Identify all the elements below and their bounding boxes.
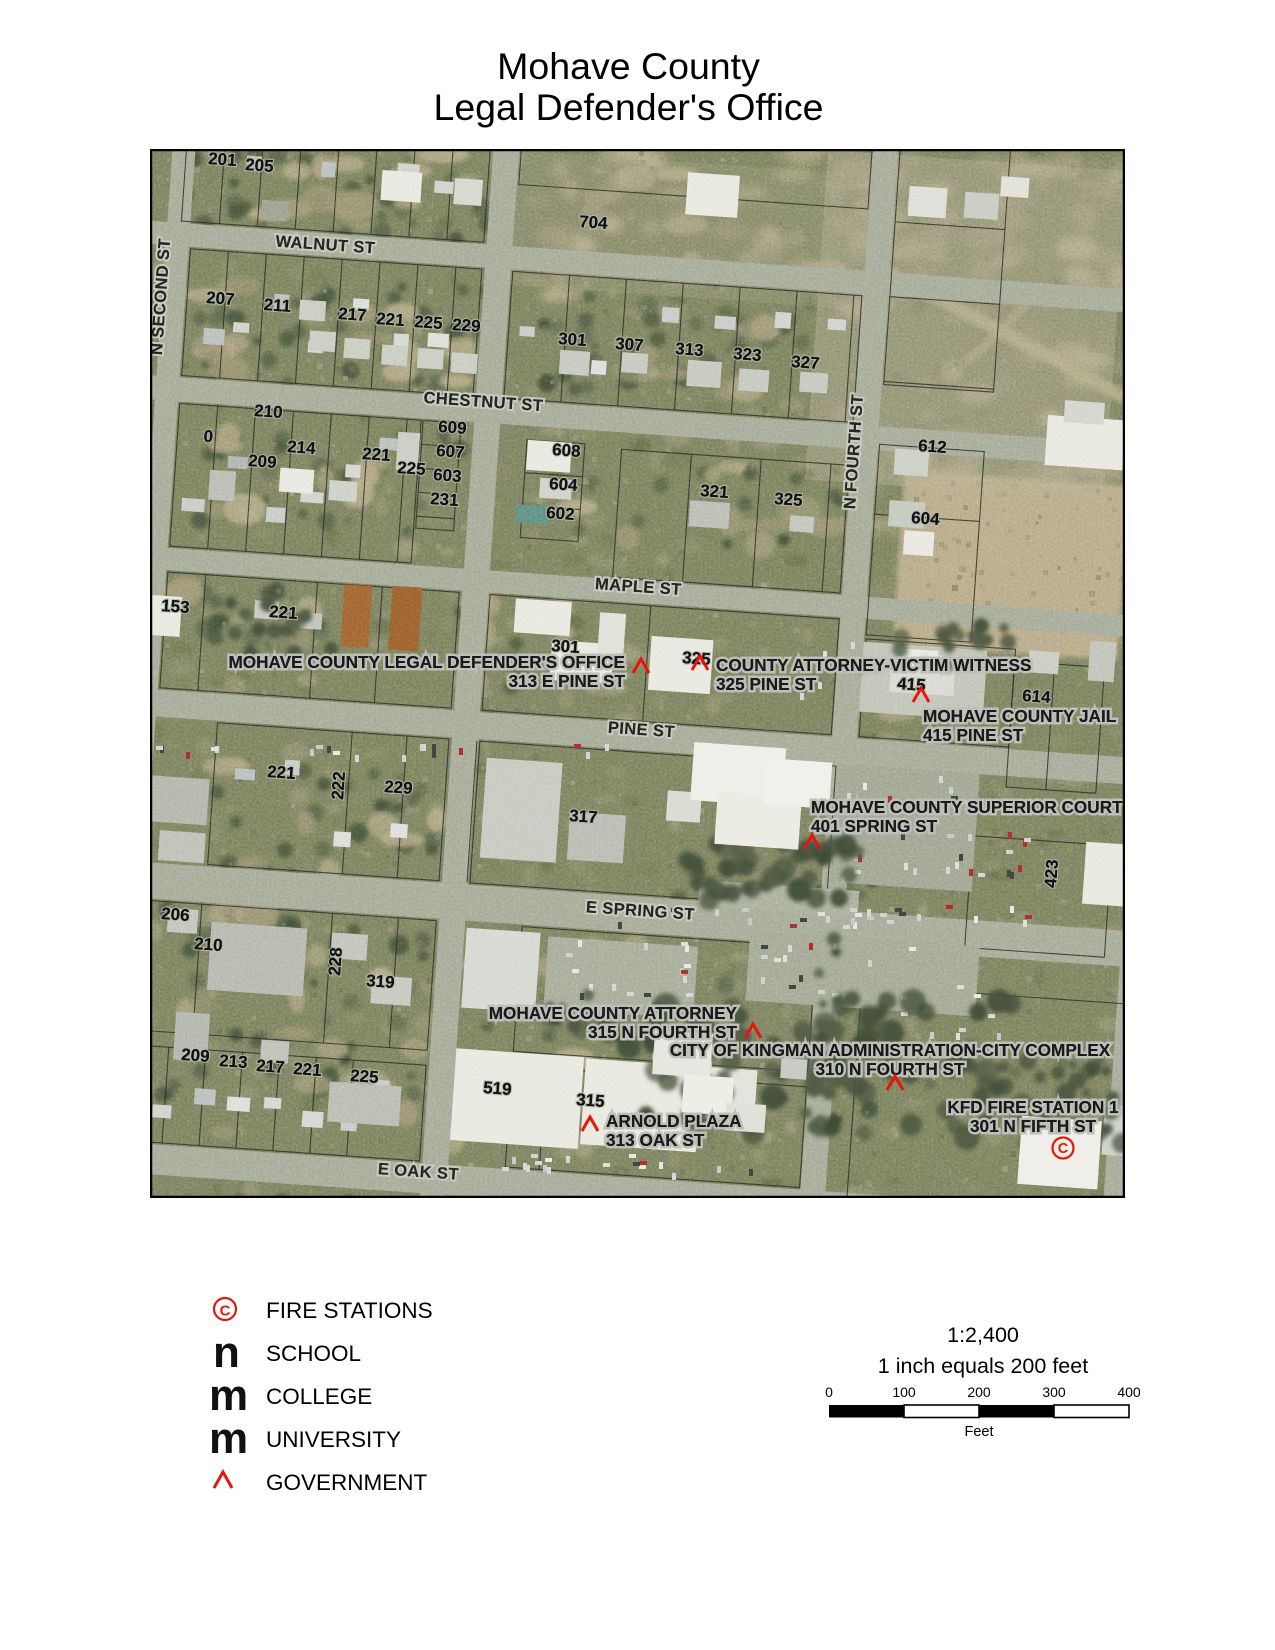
svg-text:0: 0 bbox=[825, 1384, 833, 1400]
svg-text:GOVERNMENT: GOVERNMENT bbox=[266, 1470, 428, 1495]
svg-text:COLLEGE: COLLEGE bbox=[266, 1384, 372, 1409]
svg-text:1 inch equals 200 feet: 1 inch equals 200 feet bbox=[878, 1354, 1088, 1378]
svg-text:m: m bbox=[209, 1371, 248, 1420]
svg-text:m: m bbox=[209, 1414, 248, 1463]
svg-text:n: n bbox=[213, 1328, 240, 1377]
svg-text:200: 200 bbox=[967, 1384, 991, 1400]
svg-text:400: 400 bbox=[1117, 1384, 1141, 1400]
svg-text:UNIVERSITY: UNIVERSITY bbox=[266, 1427, 401, 1452]
svg-text:SCHOOL: SCHOOL bbox=[266, 1341, 361, 1366]
svg-text:C: C bbox=[220, 1303, 231, 1320]
svg-text:FIRE STATIONS: FIRE STATIONS bbox=[266, 1298, 433, 1323]
svg-text:100: 100 bbox=[892, 1384, 916, 1400]
svg-text:Feet: Feet bbox=[964, 1424, 993, 1440]
svg-text:1:2,400: 1:2,400 bbox=[947, 1323, 1019, 1347]
svg-text:300: 300 bbox=[1042, 1384, 1066, 1400]
